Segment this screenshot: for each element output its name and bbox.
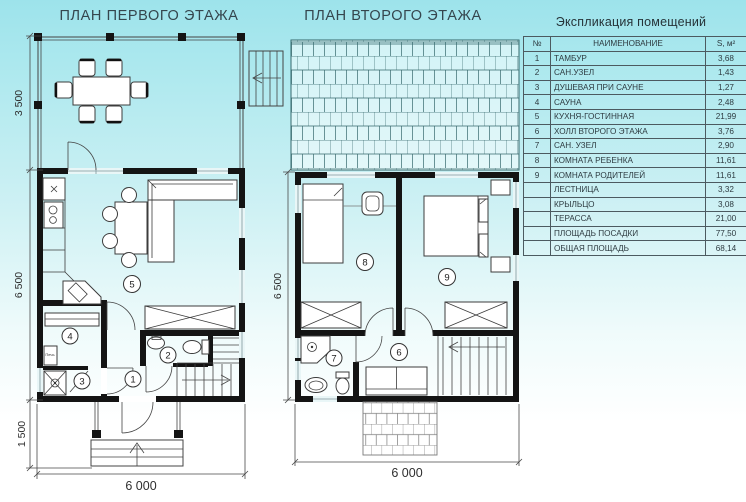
legend-cell-area: 21,00	[706, 212, 746, 227]
legend-cell-area: 2,48	[706, 95, 746, 110]
legend-row: ОБЩАЯ ПЛОЩАДЬ 68,14	[524, 241, 746, 256]
room-6-number: 6	[396, 348, 401, 359]
legend-cell-name: КОМНАТА РОДИТЕЛЕЙ	[551, 168, 706, 183]
legend-table: № НАИМЕНОВАНИЕ S, м² 1 ТАМБУР 3,68 2 СА	[523, 36, 746, 256]
corner-fireplace	[63, 281, 101, 304]
legend-cell-num: 1	[524, 51, 551, 66]
legend-col-num: №	[524, 37, 551, 52]
legend-row: КРЫЛЬЦО 3,08	[524, 197, 746, 212]
legend-cell-area: 11,61	[706, 168, 746, 183]
legend-cell-name: САУНА	[551, 95, 706, 110]
legend-row: 6 ХОЛЛ ВТОРОГО ЭТАЖА 3,76	[524, 124, 746, 139]
legend-row: 2 САН.УЗЕЛ 1,43	[524, 66, 746, 81]
legend-row: 3 ДУШЕВАЯ ПРИ САУНЕ 1,27	[524, 80, 746, 95]
legend-cell-num: 5	[524, 109, 551, 124]
legend-cell-num	[524, 241, 551, 256]
room-3-number: 3	[79, 377, 84, 388]
shower-room: 3	[44, 371, 90, 395]
child-room: 8	[301, 184, 396, 328]
legend-cell-area: 2,90	[706, 139, 746, 154]
legend-cell-name: КУХНЯ-ГОСТИННАЯ	[551, 109, 706, 124]
legend-row: 9 КОМНАТА РОДИТЕЛЕЙ 11,61	[524, 168, 746, 183]
first-floor-plan: Печь 4 3 2	[13, 33, 283, 493]
dim-6000-2: 6 000	[391, 466, 422, 480]
legend-cell-name: САН. УЗЕЛ	[551, 139, 706, 154]
legend-cell-name: ОБЩАЯ ПЛОЩАДЬ	[551, 241, 706, 256]
legend-cell-area: 3,32	[706, 182, 746, 197]
legend-cell-num: 8	[524, 153, 551, 168]
legend-cell-name: КОМНАТА РЕБЕНКА	[551, 153, 706, 168]
legend-col-name: НАИМЕНОВАНИЕ	[551, 37, 706, 52]
terrace-roof	[291, 40, 519, 170]
blueprint-canvas: ПЛАН ПЕРВОГО ЭТАЖА ПЛАН ВТОРОГО ЭТАЖА	[0, 0, 746, 502]
second-floor-hall: 6	[366, 344, 427, 396]
room-4-number: 4	[67, 332, 72, 343]
second-floor-plan: 8 9	[272, 40, 522, 480]
legend-cell-num: 7	[524, 139, 551, 154]
legend-cell-num	[524, 182, 551, 197]
parents-room: 9	[424, 180, 510, 328]
legend-cell-area: 3,76	[706, 124, 746, 139]
dim-6500-2: 6 500	[272, 273, 284, 299]
legend-cell-num: 6	[524, 124, 551, 139]
legend-row: ТЕРАССА 21,00	[524, 212, 746, 227]
wardrobe-first-floor	[145, 306, 235, 329]
dim-6000-1: 6 000	[125, 479, 156, 493]
legend-row: 1 ТАМБУР 3,68	[524, 51, 746, 66]
legend-cell-name: ТАМБУР	[551, 51, 706, 66]
legend-cell-area: 1,43	[706, 66, 746, 81]
legend-cell-name: ПЛОЩАДЬ ПОСАДКИ	[551, 226, 706, 241]
legend-cell-area: 68,14	[706, 241, 746, 256]
legend-cell-area: 21,99	[706, 109, 746, 124]
legend-cell-area: 3,68	[706, 51, 746, 66]
living-dining-table	[103, 188, 148, 268]
room-2-number: 2	[165, 351, 170, 362]
legend-cell-name: ЛЕСТНИЦА	[551, 182, 706, 197]
exterior-staircase	[249, 51, 283, 106]
porch	[91, 402, 183, 466]
legend-cell-name: КРЫЛЬЦО	[551, 197, 706, 212]
legend-cell-name: ДУШЕВАЯ ПРИ САУНЕ	[551, 80, 706, 95]
corner-sofa	[148, 180, 237, 262]
legend-row: 7 САН. УЗЕЛ 2,90	[524, 139, 746, 154]
room-legend: Экспликация помещений № НАИМЕНОВАНИЕ S, …	[523, 15, 739, 256]
legend-cell-num	[524, 212, 551, 227]
room-1-number: 1	[130, 375, 135, 386]
legend-cell-area: 1,27	[706, 80, 746, 95]
legend-cell-num	[524, 197, 551, 212]
room-7-number: 7	[331, 354, 336, 365]
legend-row: ПЛОЩАДЬ ПОСАДКИ 77,50	[524, 226, 746, 241]
legend-cell-num: 2	[524, 66, 551, 81]
legend-cell-num: 3	[524, 80, 551, 95]
legend-cell-name: ТЕРАССА	[551, 212, 706, 227]
legend-cell-num: 9	[524, 168, 551, 183]
legend-row: 8 КОМНАТА РЕБЕНКА 11,61	[524, 153, 746, 168]
legend-cell-num	[524, 226, 551, 241]
dim-6500-1: 6 500	[13, 272, 25, 298]
sauna-room: Печь 4	[44, 313, 99, 365]
room-9-number: 9	[444, 273, 449, 284]
stove-label: Печь	[45, 352, 54, 357]
porch-roof	[363, 402, 437, 455]
door-opening	[101, 368, 107, 394]
dim-3500: 3 500	[13, 90, 25, 116]
bathroom-second-floor: 7	[301, 336, 349, 394]
room-5-number: 5	[129, 280, 134, 291]
legend-title: Экспликация помещений	[523, 15, 739, 29]
terrace	[34, 33, 245, 170]
legend-cell-name: ХОЛЛ ВТОРОГО ЭТАЖА	[551, 124, 706, 139]
dim-1500: 1 500	[16, 421, 28, 447]
legend-cell-area: 3,08	[706, 197, 746, 212]
terrace-dining-table	[55, 59, 148, 123]
room-8-number: 8	[362, 258, 367, 269]
legend-cell-name: САН.УЗЕЛ	[551, 66, 706, 81]
legend-cell-area: 11,61	[706, 153, 746, 168]
legend-row: 4 САУНА 2,48	[524, 95, 746, 110]
legend-row: 5 КУХНЯ-ГОСТИННАЯ 21,99	[524, 109, 746, 124]
legend-col-area: S, м²	[706, 37, 746, 52]
legend-cell-area: 77,50	[706, 226, 746, 241]
legend-header-row: № НАИМЕНОВАНИЕ S, м²	[524, 37, 746, 52]
internal-staircase-2	[438, 336, 506, 396]
legend-row: ЛЕСТНИЦА 3,32	[524, 182, 746, 197]
plan1-dimensions	[26, 33, 248, 479]
legend-cell-num: 4	[524, 95, 551, 110]
